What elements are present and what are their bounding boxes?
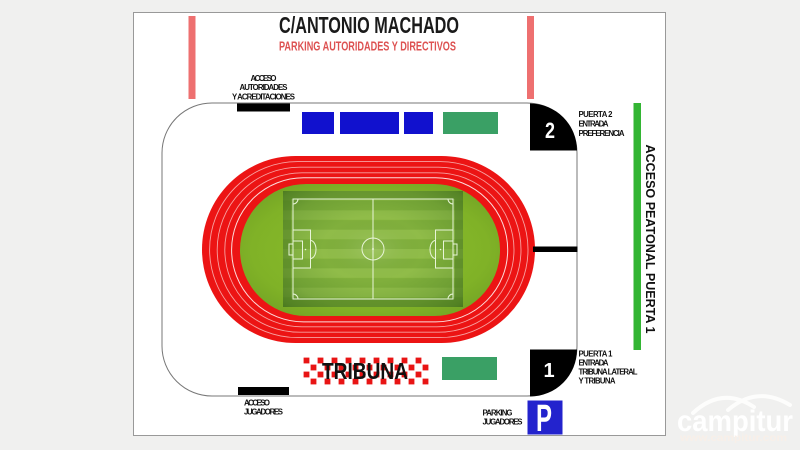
svg-text:PARKING AUTORIDADES Y DIRECTIV: PARKING AUTORIDADES Y DIRECTIVOS xyxy=(279,40,456,54)
svg-text:ACCESO: ACCESO xyxy=(251,74,277,83)
svg-text:PREFERENCIA: PREFERENCIA xyxy=(579,129,625,138)
svg-text:Y TRIBUNA: Y TRIBUNA xyxy=(579,377,616,386)
svg-text:www.campitur.com: www.campitur.com xyxy=(679,432,787,444)
svg-text:ENTRADA: ENTRADA xyxy=(579,359,609,368)
svg-text:JUGADORES: JUGADORES xyxy=(483,418,523,427)
svg-text:1: 1 xyxy=(543,360,554,382)
svg-text:TRIBUNA: TRIBUNA xyxy=(322,358,408,384)
svg-text:ACCESO: ACCESO xyxy=(244,399,270,408)
svg-text:2: 2 xyxy=(545,118,555,143)
svg-text:P: P xyxy=(536,398,552,440)
svg-text:ACCESO PEATONAL PUERTA 1: ACCESO PEATONAL PUERTA 1 xyxy=(643,145,658,334)
svg-text:Y ACREDITACIONES: Y ACREDITACIONES xyxy=(232,93,295,102)
svg-text:C/ANTONIO MACHADO: C/ANTONIO MACHADO xyxy=(279,12,459,38)
svg-text:PUERTA 1: PUERTA 1 xyxy=(579,350,614,359)
svg-text:PARKING: PARKING xyxy=(483,409,513,418)
svg-text:TRIBUNA LATERAL: TRIBUNA LATERAL xyxy=(579,368,638,377)
svg-text:JUGADORES: JUGADORES xyxy=(244,408,283,417)
svg-text:AUTORIDADES: AUTORIDADES xyxy=(240,83,288,92)
svg-text:ENTRADA: ENTRADA xyxy=(579,120,609,129)
svg-text:PUERTA 2: PUERTA 2 xyxy=(579,110,614,119)
